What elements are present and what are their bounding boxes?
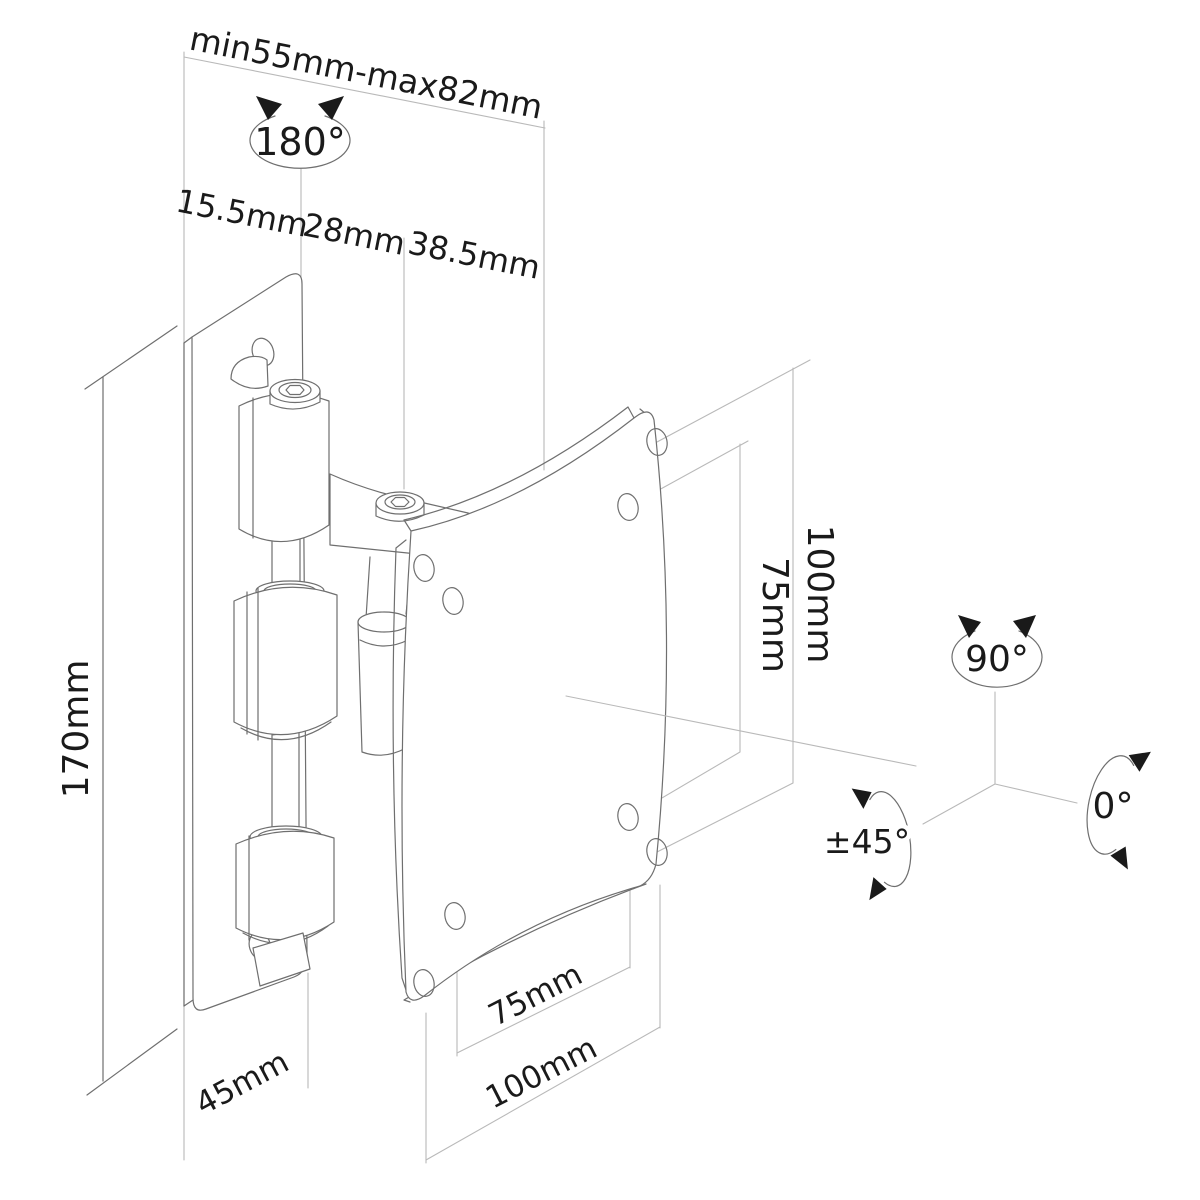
wall-mount-dimension-diagram: min55mm-max82mm 180° 15.5mm 28mm 38.5mm … — [0, 0, 1200, 1200]
tilt-down-arrow-icon — [866, 875, 889, 900]
label-180-degrees: 180° — [254, 120, 346, 164]
rotate-cw-arrow-icon — [318, 96, 344, 120]
rotate-ccw-arrow-icon — [958, 615, 981, 638]
hinge-pin-lower — [272, 731, 299, 836]
wall-surface — [85, 326, 177, 1095]
ext-100mm-v-bottom — [657, 783, 793, 852]
label-75mm-bottom: 75mm — [483, 956, 588, 1033]
label-170mm: 170mm — [56, 660, 97, 799]
label-15-5mm: 15.5mm — [173, 182, 311, 245]
label-100mm-vertical: 100mm — [799, 525, 840, 664]
label-75mm-vertical: 75mm — [754, 557, 795, 673]
rotate-down-arrow-icon — [1108, 844, 1132, 870]
label-tilt-45-degrees: ±45° — [824, 822, 910, 861]
rotate-cw-arrow-icon — [1013, 615, 1036, 638]
ext-100mm-v-top — [657, 360, 810, 442]
technical-drawing-page: min55mm-max82mm 180° 15.5mm 28mm 38.5mm … — [0, 0, 1200, 1200]
label-28mm: 28mm — [300, 206, 408, 263]
axis-tree-lines — [923, 692, 1077, 824]
label-38-5mm: 38.5mm — [405, 224, 543, 287]
swivel-cap — [358, 612, 410, 632]
arm-to-swivel-links — [366, 557, 412, 618]
wall-bottom-edge — [87, 1029, 177, 1095]
vesa-plate — [393, 407, 669, 1002]
label-45mm: 45mm — [190, 1044, 295, 1123]
label-90-degrees: 90° — [965, 639, 1029, 680]
vesa-plate-face — [402, 412, 667, 1000]
wall-top-edge — [85, 326, 177, 389]
label-0-degrees: 0° — [1093, 786, 1134, 827]
label-100mm-bottom: 100mm — [480, 1030, 603, 1116]
hinge-column — [231, 356, 337, 986]
hinge-knuckle-bottom — [236, 831, 334, 939]
rotate-ccw-arrow-icon — [256, 96, 282, 120]
dim-line-100mm-bottom — [426, 1027, 660, 1160]
hinge-knuckle-middle — [234, 587, 337, 734]
label-depth-range: min55mm-max82mm — [187, 19, 546, 127]
